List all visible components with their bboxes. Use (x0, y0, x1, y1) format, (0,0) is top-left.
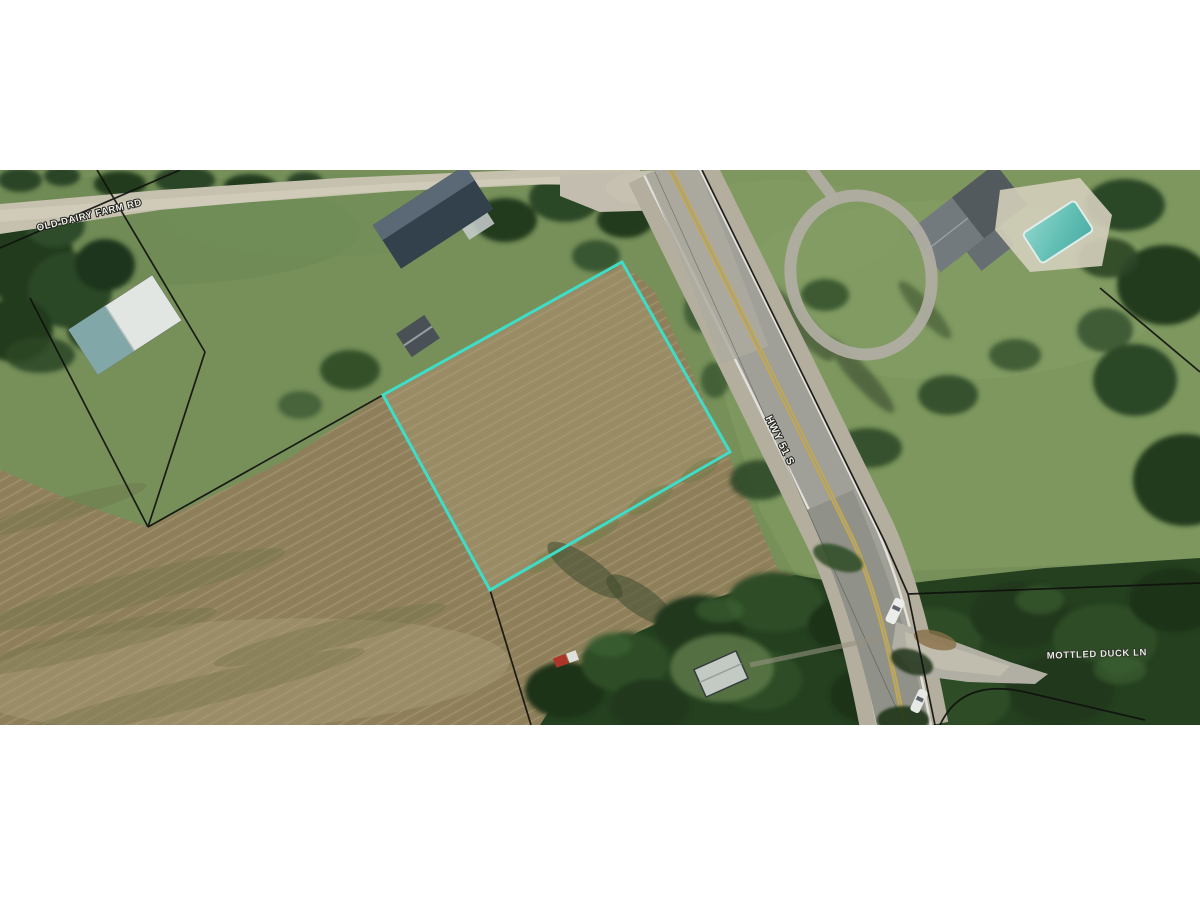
photo-tint (0, 170, 1200, 725)
listing-screenshot: OLD DAIRY FARM RD HWY 51 S MOTTLED DUCK … (0, 0, 1200, 900)
aerial-photo: OLD DAIRY FARM RD HWY 51 S MOTTLED DUCK … (0, 170, 1200, 725)
letterbox-bottom (0, 725, 1200, 900)
letterbox-top (0, 0, 1200, 170)
